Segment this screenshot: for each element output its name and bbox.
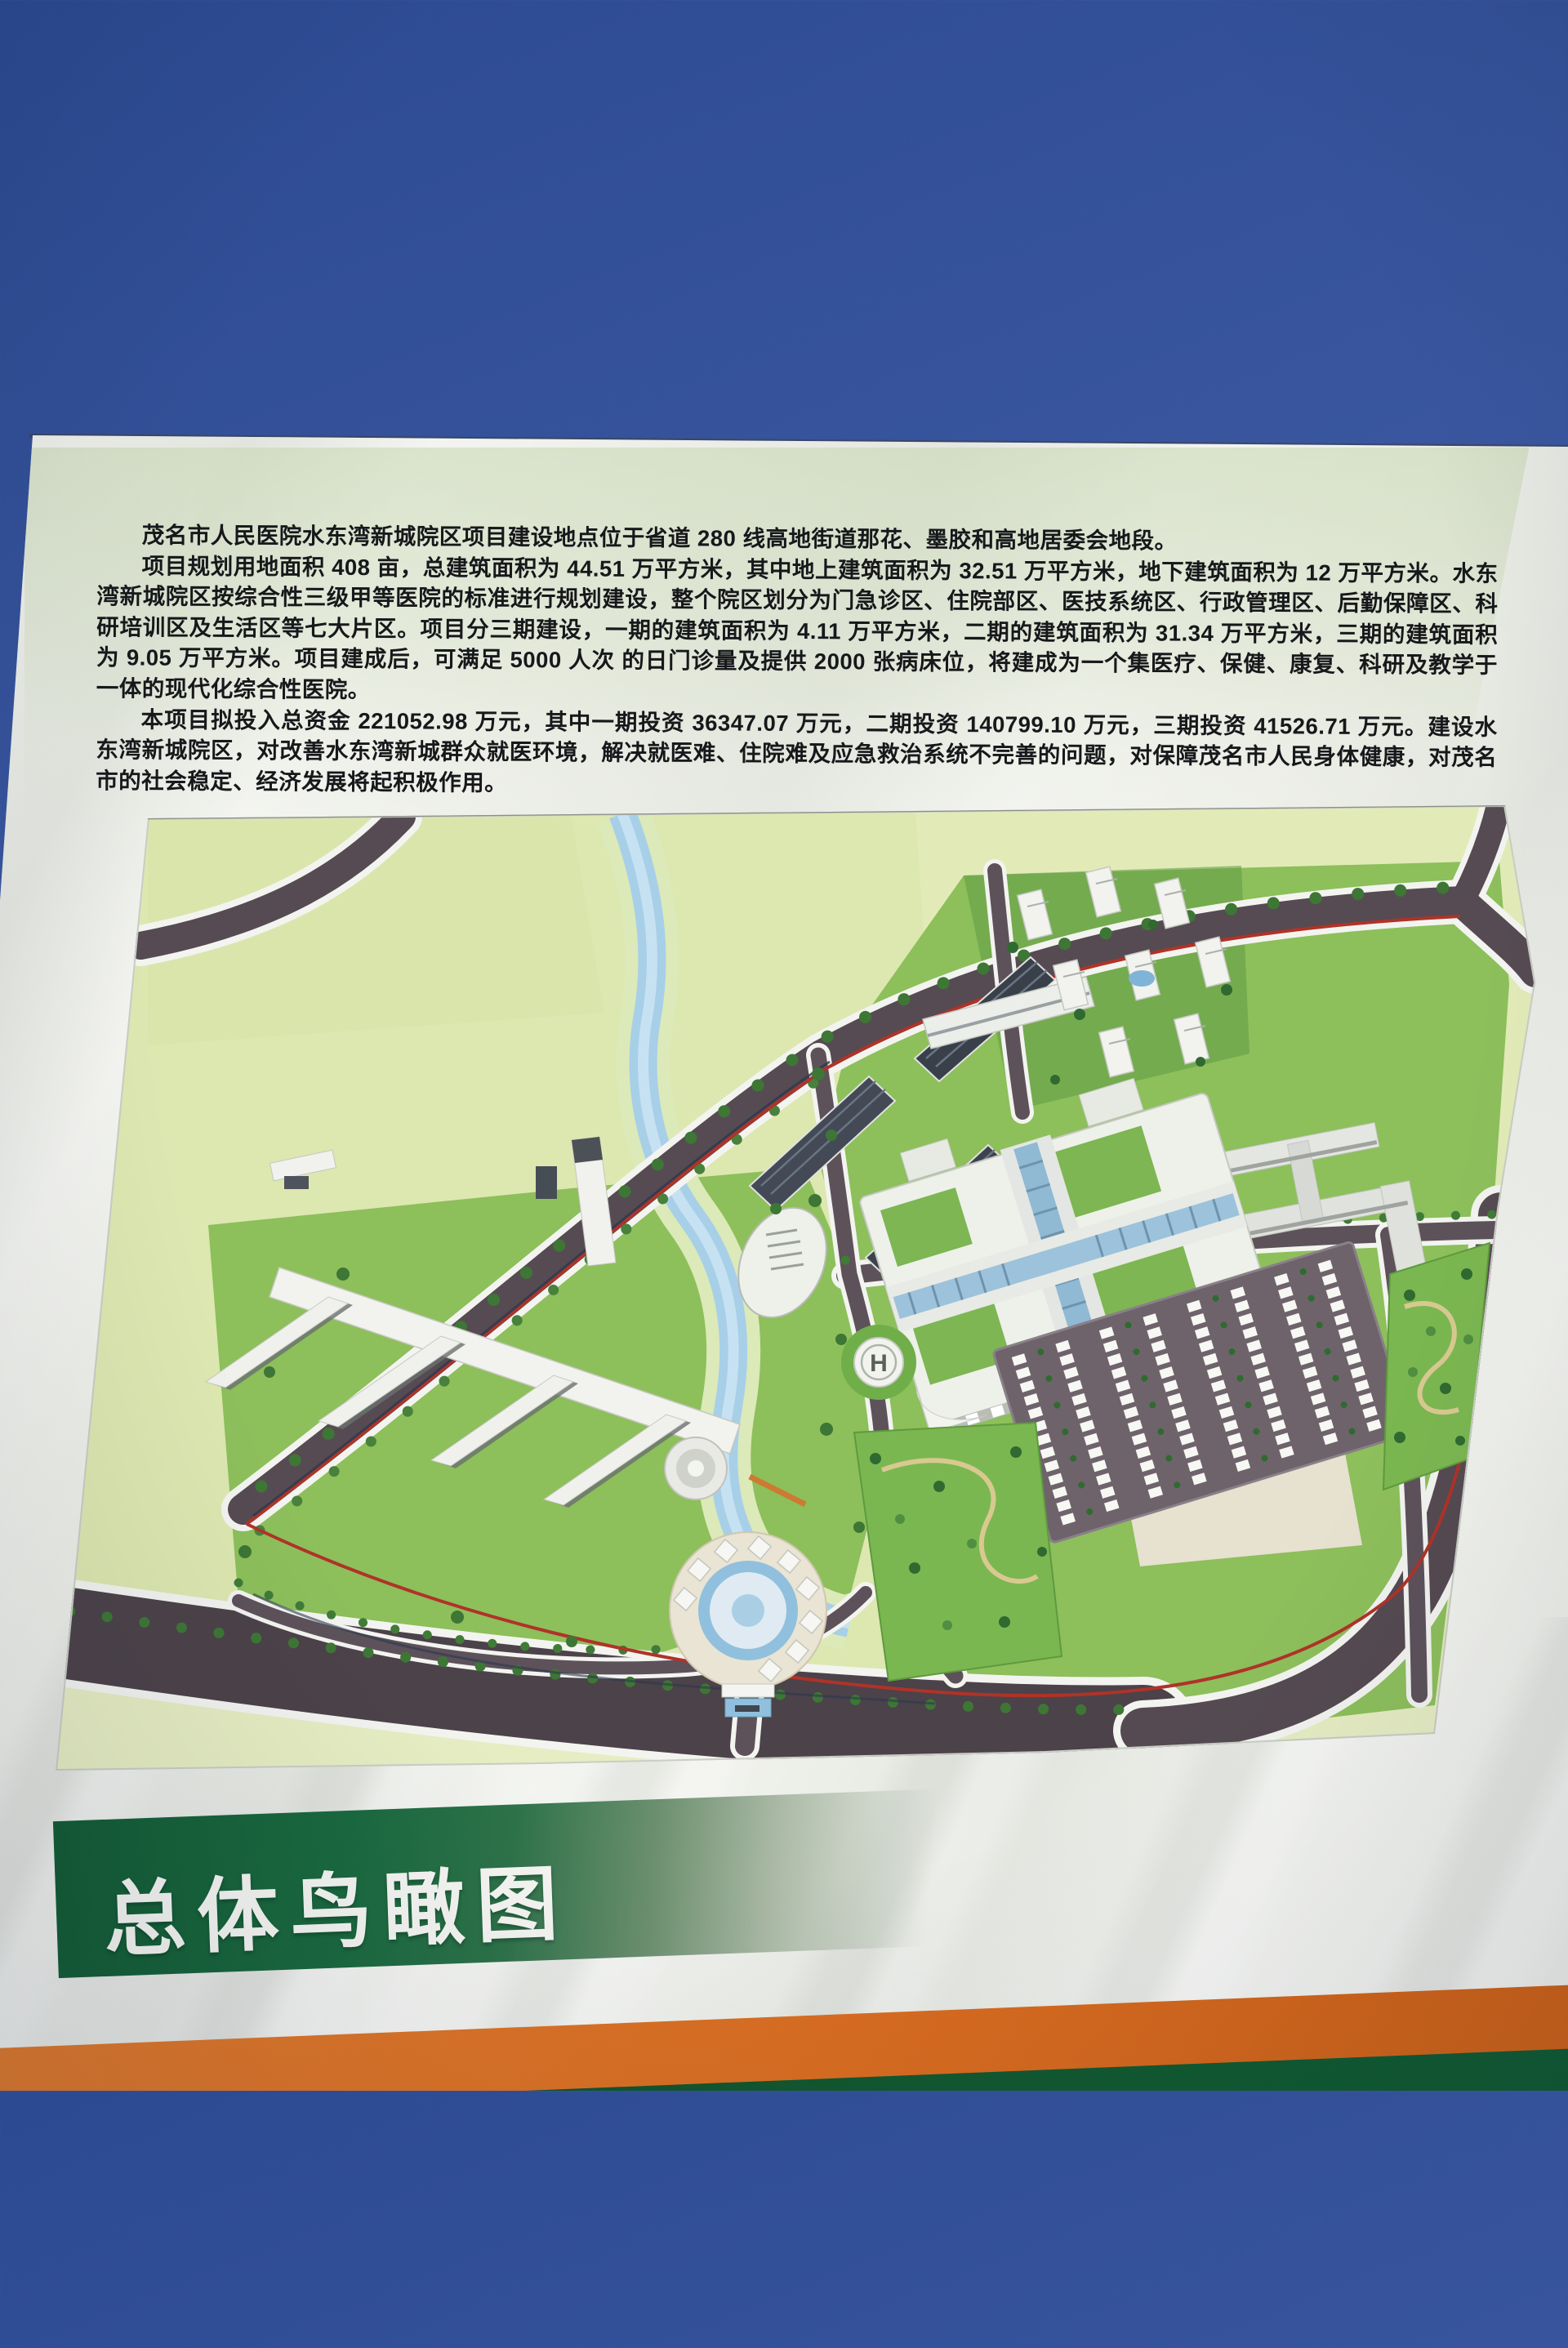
helipad: H xyxy=(841,1325,916,1400)
aerial-rendering: H xyxy=(0,0,1568,2091)
entrance-gate xyxy=(722,1684,774,1697)
billboard: 茂名市人民医院水东湾新城院区项目建设地点位于省道 280 线高地街道那花、墨胶和… xyxy=(0,0,1568,2091)
south-park xyxy=(854,1423,1062,1681)
east-park xyxy=(1383,1243,1490,1490)
helipad-letter: H xyxy=(870,1350,888,1377)
